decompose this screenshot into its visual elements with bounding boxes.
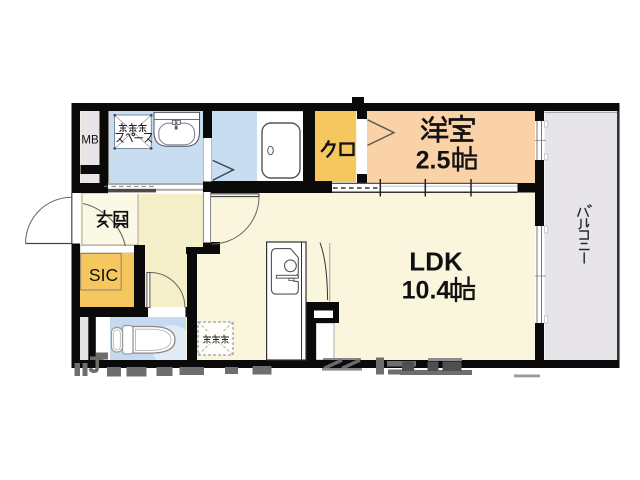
svg-text:2.5: 2.5 (416, 147, 451, 175)
svg-text:LDK: LDK (409, 247, 463, 277)
svg-text:MB: MB (81, 135, 99, 147)
svg-text:SIC: SIC (89, 265, 118, 285)
svg-text:10.4: 10.4 (402, 277, 451, 305)
